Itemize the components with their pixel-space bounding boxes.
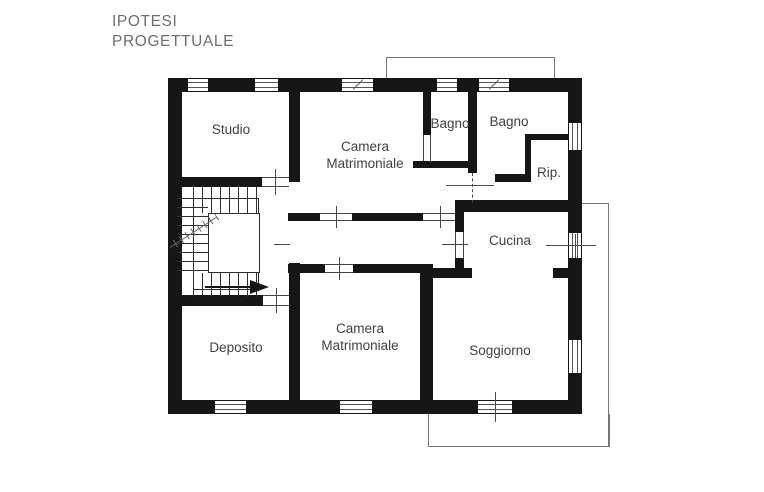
terrace-outline-top: [386, 57, 555, 80]
room-label-deposito: Deposito: [191, 339, 281, 356]
window-deposito: [215, 401, 246, 413]
room-label-text: Soggiorno: [455, 342, 545, 359]
wall-corridor-top-right: [352, 213, 423, 221]
wall-below-studio: [174, 177, 262, 187]
room-label-text: Bagno: [420, 115, 480, 132]
door-cucina-centerline: [442, 244, 468, 245]
wall-soggiorno-left: [420, 272, 433, 414]
wall-cucina-left-upper: [455, 200, 464, 232]
door-anteroom: [423, 213, 455, 221]
wall-soggiorno-stub-left: [433, 268, 472, 278]
window-bagno-right-east: [569, 123, 581, 150]
room-label-text: Camera: [305, 138, 425, 155]
door-camera-bottom-centerline: [339, 257, 340, 280]
drawing-title: IPOTESI PROGETTUALE: [112, 12, 234, 51]
window-centerline-cucina-v: [575, 234, 576, 258]
terrace-outline-right: [582, 203, 609, 447]
room-label-text: Rip.: [530, 164, 568, 181]
room-label-camera-matrimoniale-top: Camera Matrimoniale: [305, 138, 425, 172]
room-label-text: Camera: [300, 320, 420, 337]
wall-rip-stub: [495, 174, 525, 182]
wall-studio-camera-divider: [289, 92, 300, 182]
floor-plan-sheet: IPOTESI PROGETTUALE: [0, 0, 764, 492]
corridor-threshold-line: [274, 244, 290, 245]
wall-rip-top: [525, 134, 568, 140]
room-label-studio: Studio: [186, 121, 276, 138]
door-studio-centerline: [275, 169, 276, 195]
door-anteroom-centerline: [440, 206, 441, 228]
room-label-ripostiglio: Rip.: [530, 164, 568, 181]
window-centerline-soggiorno-south: [495, 392, 496, 422]
wall-cucina-top: [455, 200, 582, 212]
window-studio-1: [188, 79, 208, 91]
room-label-cucina: Cucina: [470, 232, 550, 249]
room-label-camera-matrimoniale-bottom: Camera Matrimoniale: [300, 320, 420, 354]
drawing-title-line2: PROGETTUALE: [112, 32, 234, 52]
door-deposito-centerline: [276, 288, 277, 313]
terrace-outline-bottom: [428, 414, 610, 447]
door-cucina: [455, 232, 464, 258]
window-bagno-left: [437, 79, 457, 91]
room-label-text: Deposito: [191, 339, 281, 356]
room-label-text: Bagno: [479, 113, 539, 130]
wall-bagni-divider: [468, 92, 477, 173]
window-camera-top: [342, 79, 373, 91]
window-camera-bottom: [340, 401, 372, 413]
room-label-bagno-left: Bagno: [420, 115, 480, 132]
door-dashed-leaf: [472, 173, 474, 203]
room-label-text: Studio: [186, 121, 276, 138]
room-label-soggiorno: Soggiorno: [455, 342, 545, 359]
wall-corridor-top-left: [288, 213, 320, 221]
room-label-text: Cucina: [470, 232, 550, 249]
window-soggiorno-east: [569, 340, 581, 373]
wall-soggiorno-stub-right: [553, 268, 582, 278]
wall-outer-top: [168, 78, 582, 92]
room-label-text: Matrimoniale: [300, 337, 420, 354]
drawing-title-line1: IPOTESI: [112, 12, 234, 32]
window-centerline-cucina-h: [546, 245, 596, 246]
room-label-text: Matrimoniale: [305, 155, 425, 172]
window-studio-2: [255, 79, 278, 91]
stair-direction-line: [205, 286, 252, 288]
stair-direction-arrow-icon: [250, 280, 269, 294]
wall-corridor-bottom-left: [288, 264, 325, 273]
door-dashed-centerline: [446, 185, 494, 186]
room-label-bagno-right: Bagno: [479, 113, 539, 130]
window-diagonal-mark-icon: [489, 79, 500, 90]
window-diagonal-mark-icon: [353, 79, 364, 90]
window-bagno-right: [479, 79, 509, 91]
door-camera-top-centerline: [336, 206, 337, 228]
wall-deposito-camera-divider: [289, 263, 300, 414]
